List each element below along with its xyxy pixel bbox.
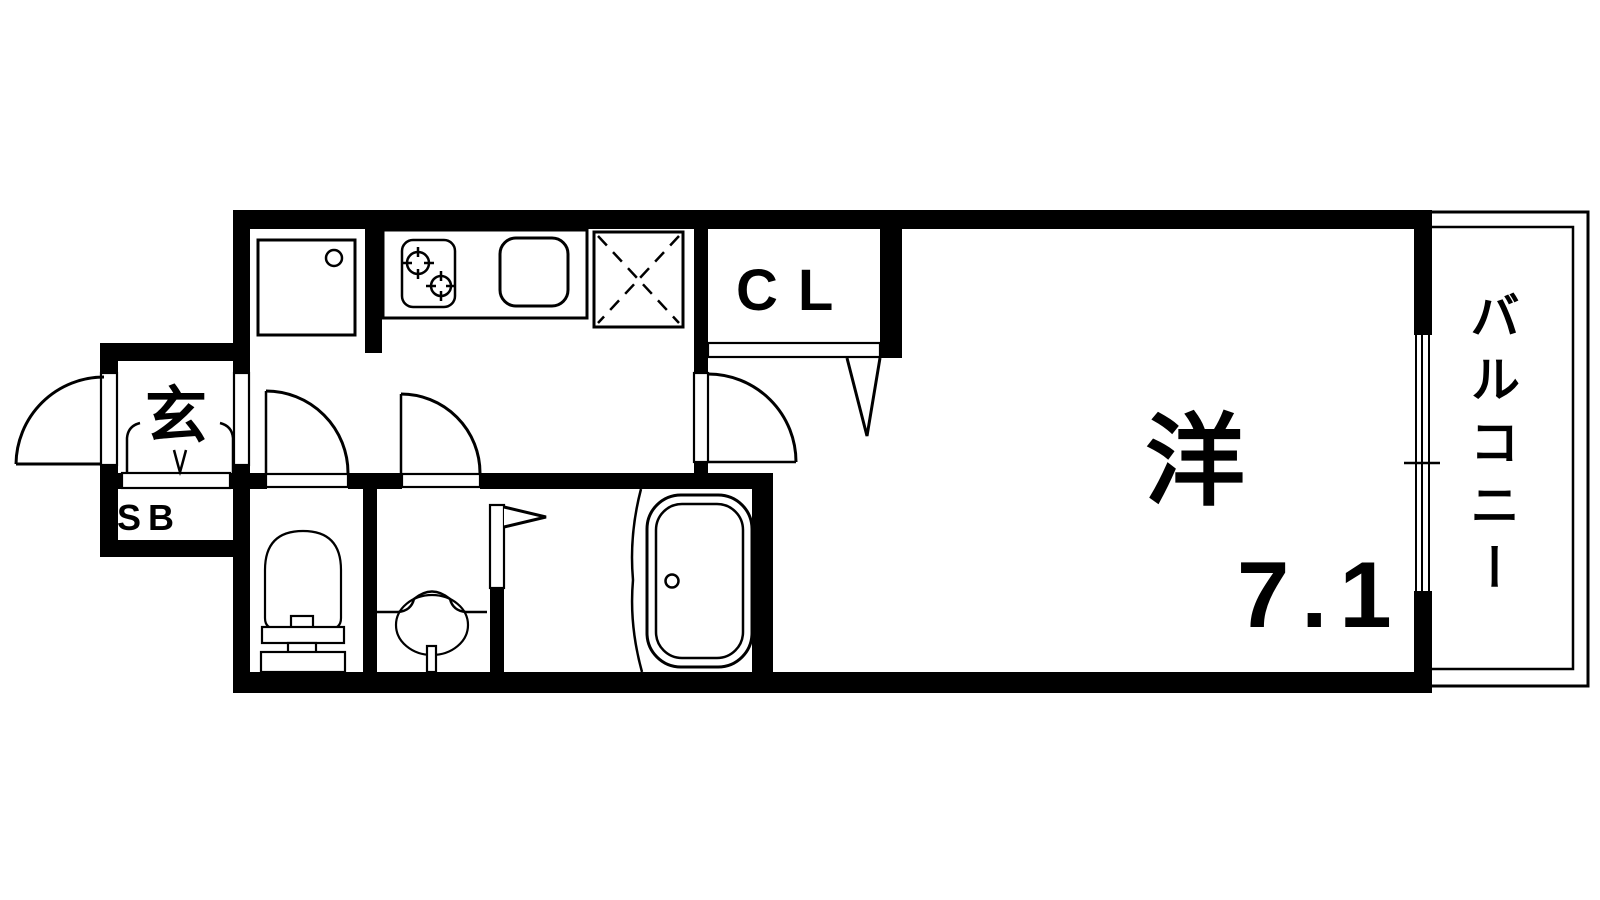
- entrance-step: [122, 473, 230, 488]
- washbasin-icon: [377, 592, 487, 673]
- kitchen-counter: [383, 230, 587, 318]
- washroom-door-threshold: [402, 474, 480, 487]
- sliding-window: [1404, 335, 1440, 591]
- toilet-icon: [261, 531, 345, 672]
- toilet-door-threshold: [266, 474, 348, 487]
- floor-plan-page: 玄 SB CL 洋 7.1 バルコニー: [0, 0, 1600, 900]
- entrance-label: 玄: [145, 386, 207, 448]
- bathtub-icon: [632, 489, 752, 672]
- shoe-box-label: SB: [117, 500, 181, 536]
- bathroom-folding-door: [490, 505, 546, 588]
- closet-label: CL: [736, 262, 853, 320]
- refrigerator-space: [594, 232, 683, 327]
- room-size-label: 7.1: [1237, 548, 1404, 642]
- washroom-door: [401, 394, 480, 473]
- front-door: [16, 377, 104, 464]
- toilet-door: [266, 391, 348, 473]
- closet-folding-door: [708, 343, 880, 436]
- balcony-label: バルコニー: [1466, 290, 1516, 605]
- main-room-door: [694, 373, 796, 462]
- washing-machine-space: [258, 240, 355, 335]
- front-door-frame: [101, 373, 117, 465]
- floor-plan-drawing: [0, 0, 1600, 900]
- room-label: 洋: [1145, 412, 1245, 512]
- entrance-passage-frame: [234, 373, 249, 465]
